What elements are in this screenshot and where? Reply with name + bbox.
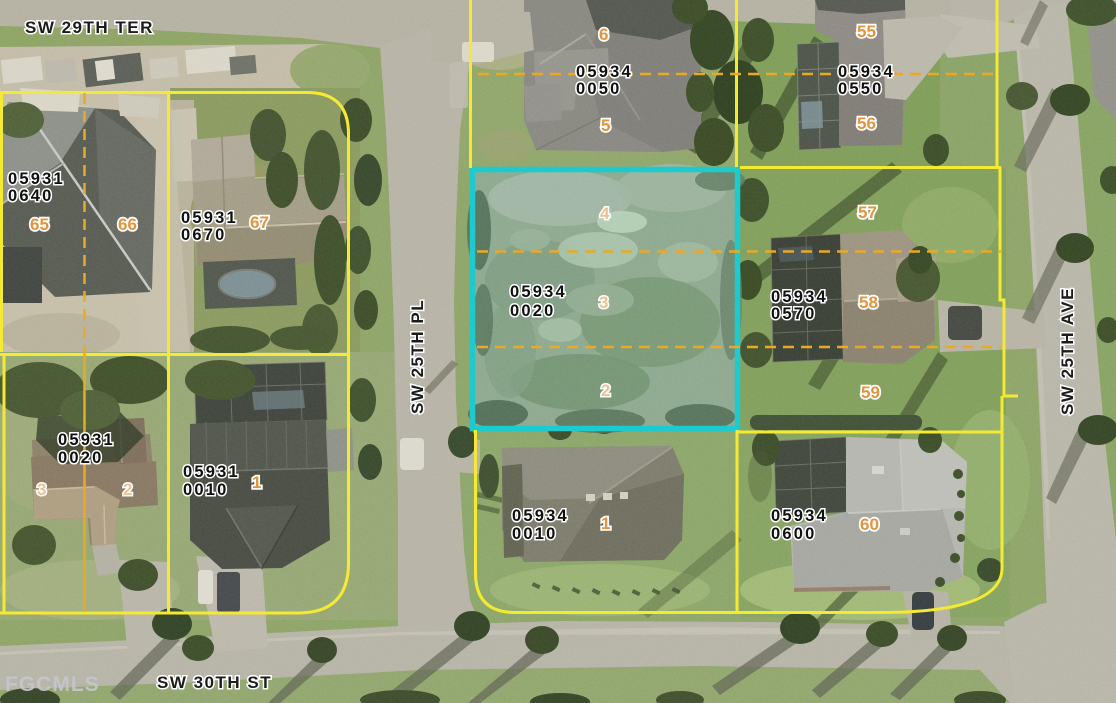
svg-text:0010: 0010 [183, 481, 229, 499]
svg-text:SW 29TH TER: SW 29TH TER [25, 18, 154, 37]
svg-text:0600: 0600 [771, 525, 817, 543]
svg-text:05931: 05931 [58, 431, 115, 449]
svg-text:58: 58 [859, 293, 878, 312]
svg-text:60: 60 [860, 515, 879, 534]
svg-text:05934: 05934 [576, 63, 633, 81]
svg-text:05934: 05934 [771, 507, 828, 525]
svg-text:0550: 0550 [838, 80, 884, 98]
svg-text:0570: 0570 [771, 305, 817, 323]
svg-text:05931: 05931 [181, 209, 238, 227]
svg-text:65: 65 [30, 215, 49, 234]
svg-text:3: 3 [37, 480, 46, 499]
svg-text:2: 2 [123, 480, 132, 499]
svg-text:05934: 05934 [512, 507, 569, 525]
svg-text:57: 57 [858, 203, 877, 222]
svg-text:56: 56 [857, 114, 876, 133]
svg-text:05934: 05934 [838, 63, 895, 81]
svg-text:1: 1 [601, 514, 610, 533]
svg-text:5: 5 [601, 116, 610, 135]
svg-text:SW 25TH PL: SW 25TH PL [408, 299, 427, 414]
svg-text:0020: 0020 [510, 302, 556, 320]
svg-text:05931: 05931 [183, 463, 240, 481]
svg-text:0020: 0020 [58, 449, 104, 467]
svg-text:SW 30TH ST: SW 30TH ST [157, 673, 272, 692]
svg-text:05931: 05931 [8, 170, 65, 188]
svg-text:3: 3 [599, 293, 608, 312]
svg-text:0010: 0010 [512, 525, 558, 543]
svg-text:05934: 05934 [771, 288, 828, 306]
svg-text:6: 6 [599, 25, 608, 44]
svg-text:FGCMLS: FGCMLS [5, 673, 100, 696]
svg-text:55: 55 [857, 22, 876, 41]
svg-text:66: 66 [118, 215, 137, 234]
svg-text:4: 4 [600, 204, 610, 223]
svg-text:SW 25TH AVE: SW 25TH AVE [1058, 287, 1077, 415]
svg-text:05934: 05934 [510, 283, 567, 301]
svg-text:67: 67 [250, 213, 269, 232]
svg-text:0670: 0670 [181, 226, 227, 244]
svg-text:1: 1 [252, 473, 261, 492]
svg-text:2: 2 [601, 381, 610, 400]
svg-text:0640: 0640 [8, 187, 54, 205]
svg-text:0050: 0050 [576, 80, 622, 98]
svg-text:59: 59 [861, 383, 880, 402]
